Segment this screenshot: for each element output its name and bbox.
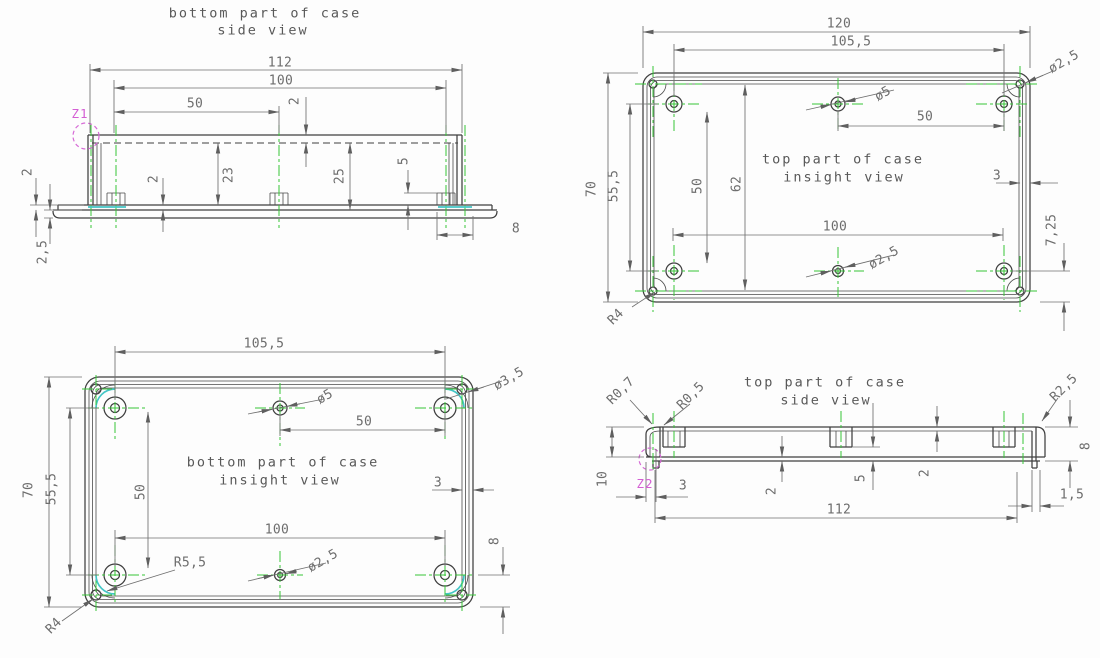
dim-55-5: 55,5 (608, 170, 621, 203)
dim-70: 70 (586, 181, 599, 197)
dim-50-h: 50 (917, 111, 933, 124)
dim-23: 23 (223, 167, 236, 183)
dim-8: 8 (1080, 442, 1093, 450)
dim-2-bottom: 2 (766, 487, 779, 495)
view1-subtitle: side view (217, 24, 308, 38)
dim-2-rim: 2 (289, 97, 302, 105)
zoom-label-z2: Z2 (636, 478, 653, 491)
dim-3: 3 (679, 480, 687, 493)
view3-subtitle: insight view (219, 474, 341, 488)
dim-8: 8 (489, 537, 502, 545)
dim-25: 25 (334, 168, 347, 184)
cad-drawing-case: bottom part of case side view Z1 112 100… (0, 0, 1100, 658)
view-bottom-part-side (30, 64, 497, 244)
view4-subtitle: side view (780, 394, 871, 408)
dim-10: 10 (597, 471, 610, 487)
dim-100: 100 (823, 221, 847, 234)
dim-50-h: 50 (356, 416, 372, 429)
dim-5: 5 (398, 157, 411, 165)
dim-2-floor: 2 (148, 175, 161, 183)
drawing-canvas (0, 0, 1100, 658)
view3-title: bottom part of case (187, 456, 379, 470)
dim-105-5: 105,5 (831, 36, 872, 49)
dim-r5-5: R5,5 (174, 557, 207, 570)
dim-105-5: 105,5 (244, 338, 285, 351)
dim-3: 3 (993, 170, 1001, 183)
dim-3: 3 (434, 477, 442, 490)
dim-62: 62 (731, 176, 744, 192)
dim-112: 112 (827, 504, 851, 517)
dim-100: 100 (269, 75, 293, 88)
zoom-label-z1: Z1 (71, 108, 88, 121)
dim-112: 112 (268, 57, 292, 70)
dim-2-top: 2 (919, 469, 932, 477)
dim-50-v: 50 (135, 484, 148, 500)
dim-120: 120 (827, 18, 851, 31)
dim-1-5: 1,5 (1060, 489, 1084, 502)
dim-2-5: 2,5 (37, 240, 50, 264)
view2-title: top part of case (762, 153, 924, 167)
dim-2-lip: 2 (22, 168, 35, 176)
screw-bosses (666, 96, 1012, 279)
view1-title: bottom part of case (169, 7, 361, 21)
dim-5: 5 (855, 474, 868, 482)
dim-100: 100 (265, 524, 289, 537)
centerlines (653, 411, 1023, 472)
dim-70: 70 (23, 482, 36, 498)
view2-subtitle: insight view (783, 171, 905, 185)
view4-title: top part of case (744, 376, 906, 390)
dim-50-v: 50 (692, 178, 705, 194)
dim-8: 8 (512, 223, 520, 236)
dim-7-25: 7,25 (1046, 214, 1059, 247)
dim-50: 50 (187, 98, 203, 111)
zoom-circle-z1 (73, 123, 99, 149)
dim-55-5: 55,5 (46, 473, 59, 506)
